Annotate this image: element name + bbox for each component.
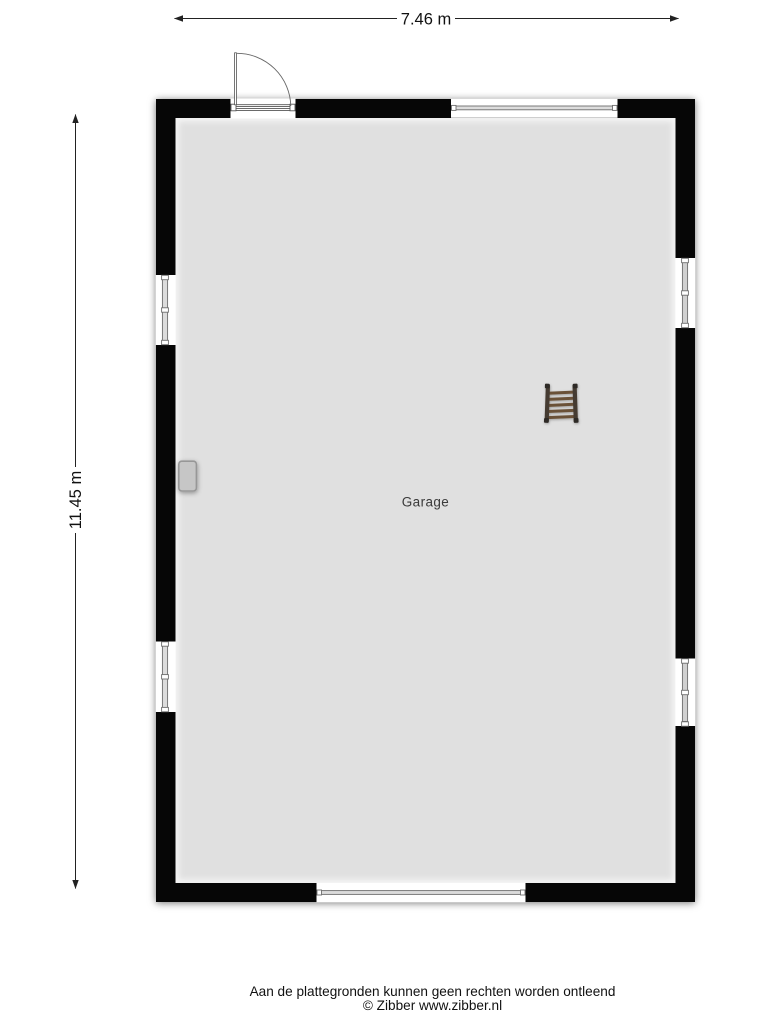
svg-text:Garage: Garage <box>402 494 449 509</box>
svg-text:© Zibber www.zibber.nl: © Zibber www.zibber.nl <box>363 998 502 1013</box>
svg-text:7.46 m: 7.46 m <box>401 10 451 28</box>
svg-text:Aan de plattegronden kunnen ge: Aan de plattegronden kunnen geen rechten… <box>250 984 616 999</box>
svg-text:11.45 m: 11.45 m <box>67 471 85 529</box>
